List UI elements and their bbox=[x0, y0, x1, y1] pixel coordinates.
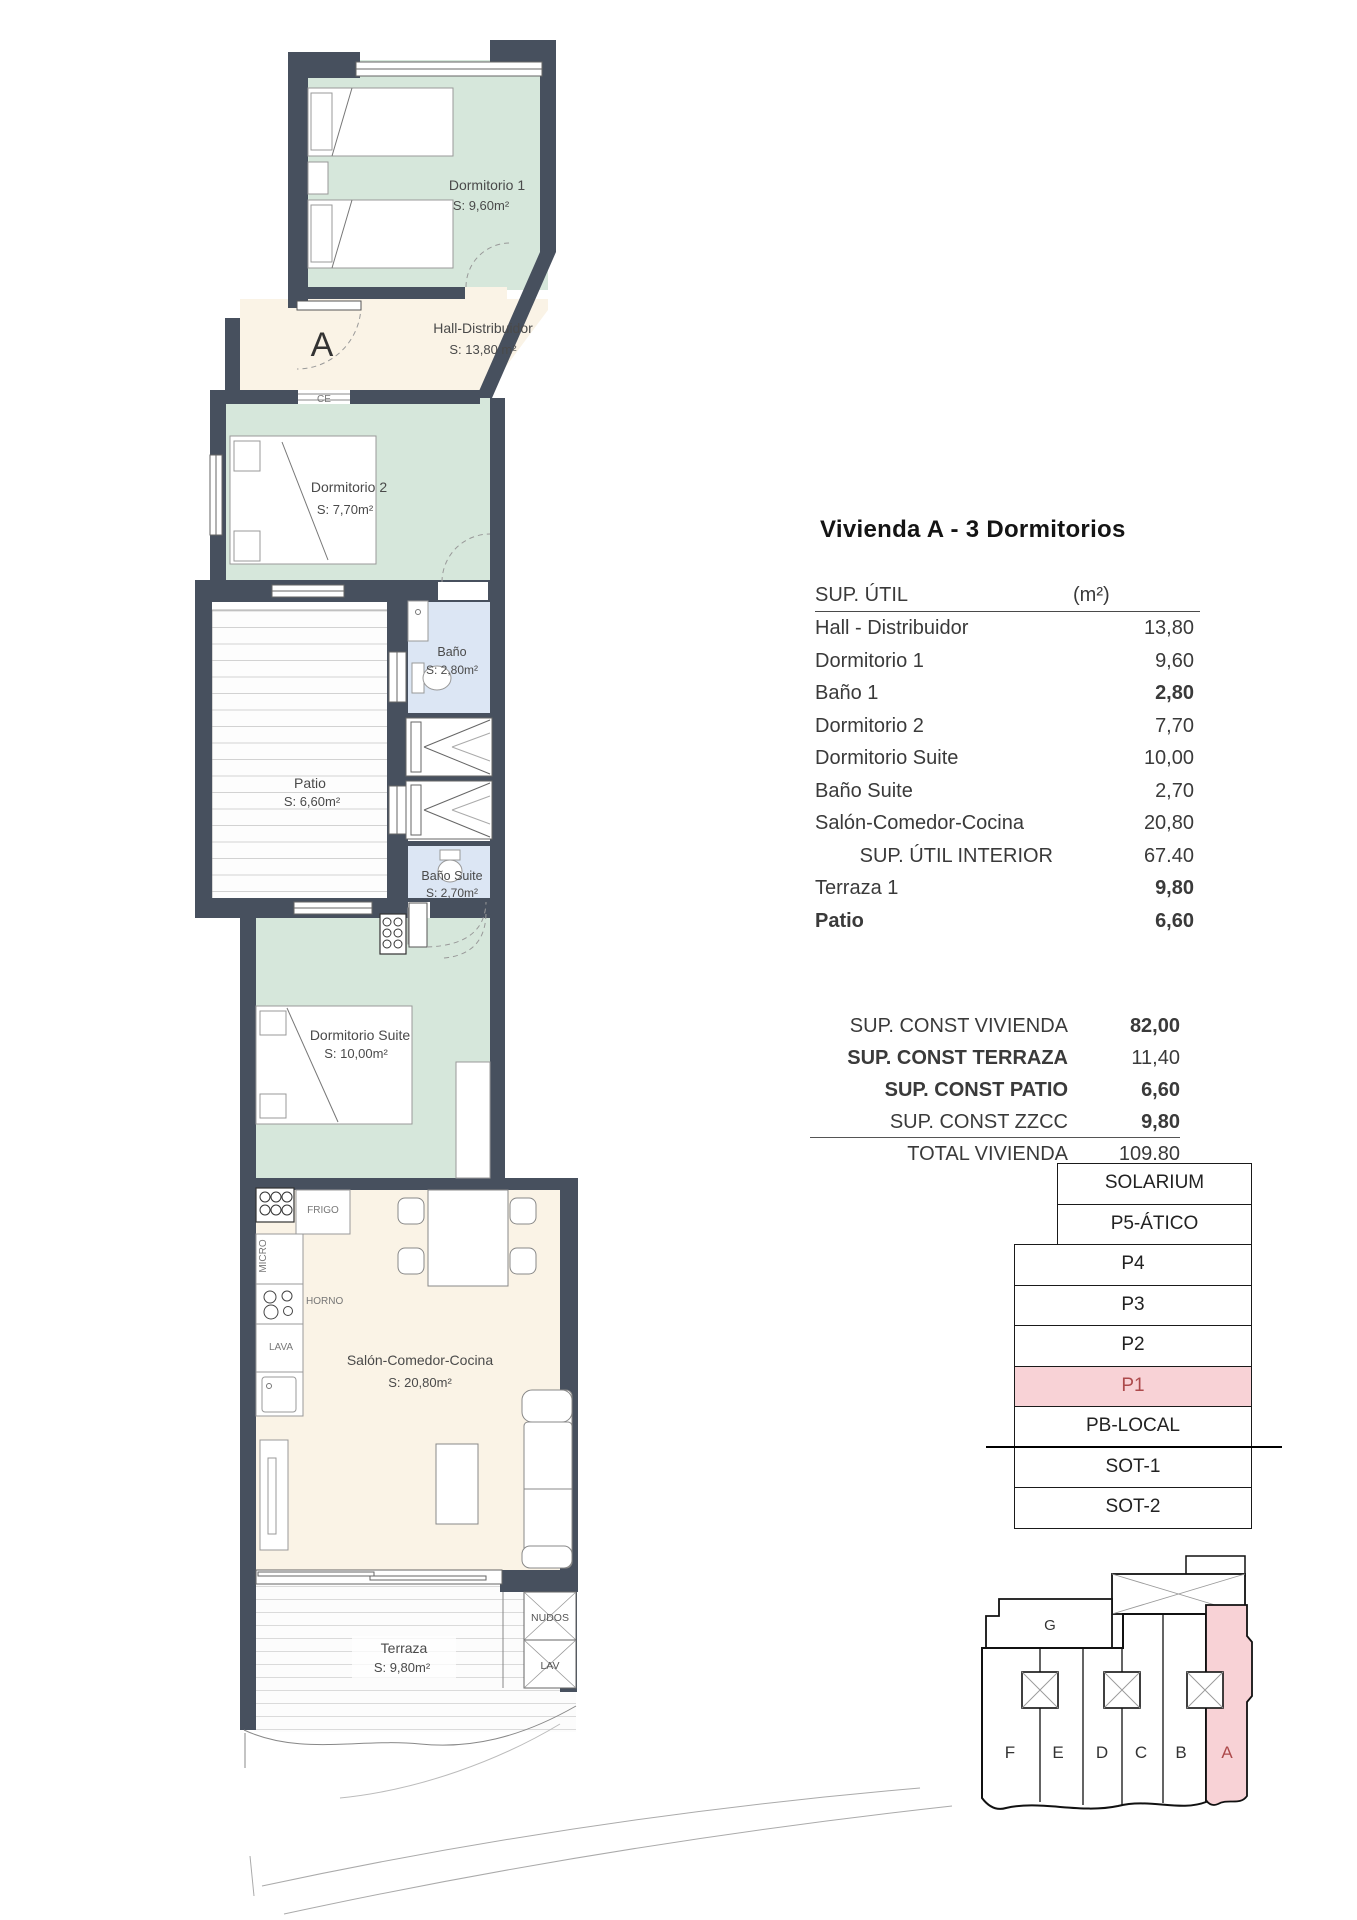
lav-label: LAV bbox=[540, 1660, 559, 1672]
floorplan-sheet: { "title": "Vivienda A - 3 Dormitorios",… bbox=[0, 0, 1357, 1920]
suite-area: S: 10,00m² bbox=[324, 1046, 388, 1061]
lava-label: LAVA bbox=[269, 1342, 293, 1353]
livingroom-area: S: 20,80m² bbox=[388, 1375, 452, 1390]
sheet-title: Vivienda A - 3 Dormitorios bbox=[820, 516, 1126, 544]
terrace-name: Terraza bbox=[381, 1640, 428, 1656]
coffee-table bbox=[436, 1444, 478, 1524]
door-gap-floor bbox=[465, 287, 507, 301]
key-plan: G F E D C B A bbox=[955, 1540, 1295, 1860]
table-row: Baño 12,80 bbox=[815, 677, 1200, 710]
table-row: SUP. CONST PATIO6,60 bbox=[660, 1074, 1180, 1106]
stack-level-solarium: SOLARIUM bbox=[1057, 1163, 1252, 1205]
kitchen-sink bbox=[262, 1377, 296, 1412]
stack-level-sot1: SOT-1 bbox=[1014, 1447, 1252, 1489]
suite-name: Dormitorio Suite bbox=[310, 1027, 411, 1043]
micro-label: MICRO bbox=[258, 1239, 269, 1273]
door-gap-bedroom2 bbox=[438, 582, 488, 600]
table-row: Dormitorio 27,70 bbox=[815, 710, 1200, 743]
ground-line bbox=[986, 1446, 1282, 1448]
keyplan-label-g: G bbox=[1044, 1617, 1056, 1634]
nudos-label: NUDOS bbox=[531, 1612, 569, 1624]
table-row: Patio6,60 bbox=[815, 905, 1200, 938]
bedroom1-name: Dormitorio 1 bbox=[449, 177, 525, 193]
bathsuite-area: S: 2,70m² bbox=[426, 886, 478, 900]
sofa bbox=[522, 1390, 572, 1568]
patio-name: Patio bbox=[294, 775, 326, 791]
livingroom-name: Salón-Comedor-Cocina bbox=[347, 1352, 494, 1368]
table-row: Baño Suite2,70 bbox=[815, 775, 1200, 808]
patio-area: S: 6,60m² bbox=[284, 794, 341, 809]
sink-bath1 bbox=[408, 601, 428, 641]
sup-util-header-label: SUP. ÚTIL bbox=[815, 584, 908, 606]
site-lines bbox=[244, 1706, 952, 1914]
sup-util-header: SUP. ÚTIL (m²) bbox=[815, 584, 1200, 612]
horno-label: HORNO bbox=[306, 1296, 343, 1307]
wardrobe-suite bbox=[456, 1062, 490, 1178]
wardrobe-1 bbox=[406, 718, 492, 776]
table-row: SUP. CONST TERRAZA11,40 bbox=[660, 1042, 1180, 1074]
entrance-door-leaf bbox=[297, 301, 361, 310]
stack-level-p4: P4 bbox=[1014, 1244, 1252, 1286]
table-row: Terraza 19,80 bbox=[815, 872, 1200, 905]
stack-level-sot2: SOT-2 bbox=[1014, 1487, 1252, 1529]
keyplan-unit-c: C bbox=[1135, 1743, 1147, 1762]
door-leaf-suite bbox=[409, 903, 427, 947]
bedroom2-name: Dormitorio 2 bbox=[311, 479, 387, 495]
toilet-tank-bathsuite bbox=[440, 850, 460, 860]
table-row: SUP. CONST ZZCC9,80 bbox=[660, 1106, 1180, 1138]
keyplan-unit-d: D bbox=[1096, 1743, 1108, 1762]
terrace-area: S: 9,80m² bbox=[374, 1660, 431, 1675]
bathsuite-name: Baño Suite bbox=[421, 869, 482, 883]
dining-table bbox=[428, 1190, 508, 1286]
stack-level-pb: PB-LOCAL bbox=[1014, 1406, 1252, 1448]
bedroom1-area: S: 9,60m² bbox=[453, 198, 510, 213]
table-row-subtotal: SUP. ÚTIL INTERIOR67.40 bbox=[815, 840, 1200, 873]
frigo-label: FRIGO bbox=[307, 1205, 339, 1216]
table-row: Hall - Distribuidor13,80 bbox=[815, 612, 1200, 645]
bath1-area: S: 2,80m² bbox=[426, 663, 478, 677]
keyplan-unit-e: E bbox=[1052, 1743, 1063, 1762]
keyplan-elevators bbox=[1022, 1672, 1223, 1708]
sup-util-unit: (m²) bbox=[1073, 584, 1110, 607]
floor-plan: Dormitorio 1 S: 9,60m² Hall-Distribuidor… bbox=[0, 0, 960, 1920]
entrance-letter: A bbox=[311, 326, 334, 364]
keyplan-unit-a: A bbox=[1221, 1743, 1233, 1762]
table-row: SUP. CONST VIVIENDA82,00 bbox=[660, 1010, 1180, 1042]
stack-level-p2: P2 bbox=[1014, 1325, 1252, 1367]
toilet-tank-bath1 bbox=[412, 663, 424, 693]
stack-level-p5: P5-ÁTICO bbox=[1057, 1204, 1252, 1246]
bedroom2-area: S: 7,70m² bbox=[317, 502, 374, 517]
sliding-pane-1 bbox=[258, 1572, 374, 1576]
bath1-name: Baño bbox=[437, 645, 466, 659]
patio-floor bbox=[212, 610, 389, 900]
stack-level-p3: P3 bbox=[1014, 1285, 1252, 1327]
keyplan-top-box bbox=[1186, 1556, 1245, 1576]
sliding-pane-2 bbox=[370, 1576, 486, 1580]
table-row: Dormitorio Suite10,00 bbox=[815, 742, 1200, 775]
table-row: Dormitorio 19,60 bbox=[815, 645, 1200, 678]
total-divider bbox=[810, 1137, 1180, 1138]
stack-level-p1-highlighted: P1 bbox=[1014, 1366, 1252, 1408]
hall-name: Hall-Distribuidor bbox=[433, 320, 533, 336]
table-row: Salón-Comedor-Cocina20,80 bbox=[815, 807, 1200, 840]
ce-tag: CE bbox=[317, 394, 331, 405]
floor-stack-diagram: SOLARIUM P5-ÁTICO P4 P3 P2 P1 PB-LOCAL S… bbox=[1014, 1163, 1252, 1543]
nightstand bbox=[308, 162, 328, 194]
keyplan-unit-f: F bbox=[1005, 1743, 1015, 1762]
sup-const-table: SUP. CONST VIVIENDA82,00 SUP. CONST TERR… bbox=[660, 1010, 1180, 1170]
wardrobe-2 bbox=[406, 781, 492, 839]
hall-area: S: 13,80 m² bbox=[449, 342, 517, 357]
sup-util-table: SUP. ÚTIL (m²) Hall - Distribuidor13,80 … bbox=[815, 584, 1200, 937]
keyplan-unit-b: B bbox=[1175, 1743, 1186, 1762]
